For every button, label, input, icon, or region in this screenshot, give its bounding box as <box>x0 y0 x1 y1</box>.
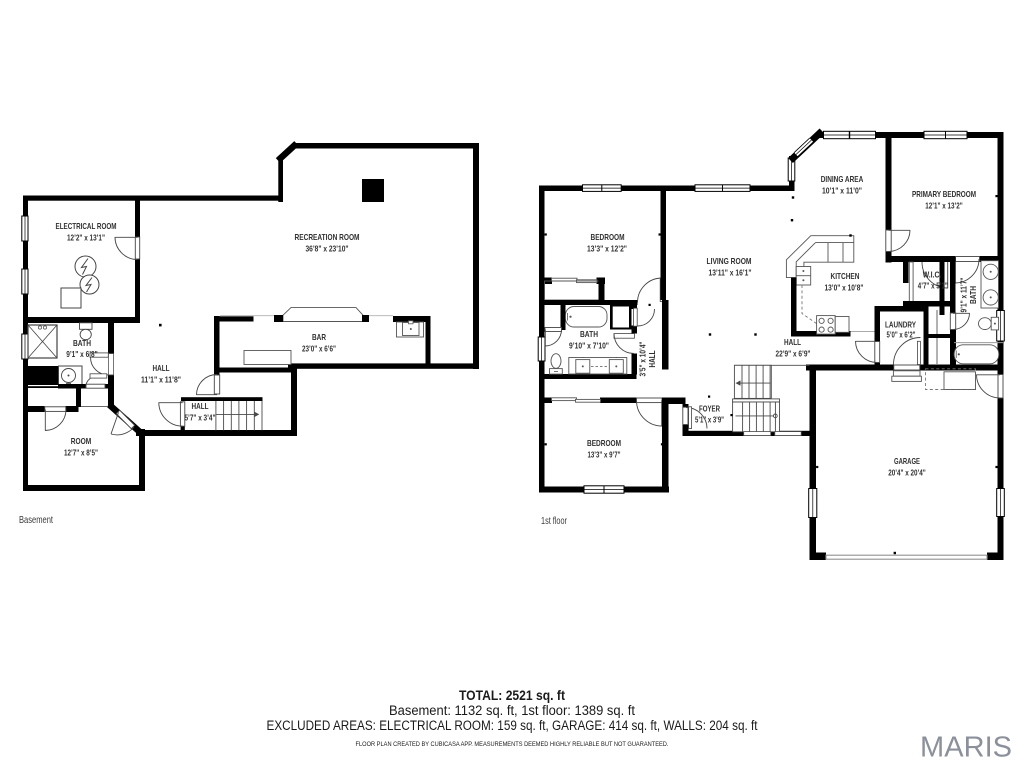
svg-text:HALL: HALL <box>153 363 170 373</box>
svg-text:4’7" x 5’1": 4’7" x 5’1" <box>918 281 948 291</box>
svg-text:ROOM: ROOM <box>71 436 92 446</box>
svg-text:HALL: HALL <box>784 337 801 347</box>
svg-text:36’8" x 23’10": 36’8" x 23’10" <box>306 244 349 254</box>
svg-text:PRIMARY BEDROOM: PRIMARY BEDROOM <box>912 189 976 199</box>
svg-text:11’1" x 11’8": 11’1" x 11’8" <box>141 375 181 385</box>
svg-text:20’4" x 20’4": 20’4" x 20’4" <box>888 468 926 478</box>
svg-text:DINING AREA: DINING AREA <box>821 174 864 184</box>
svg-text:9’1" x 6’8": 9’1" x 6’8" <box>66 349 98 359</box>
svg-text:1st floor: 1st floor <box>541 515 567 527</box>
svg-text:3’5" x 10’4": 3’5" x 10’4" <box>638 341 648 376</box>
svg-text:13’3" x 9’7": 13’3" x 9’7" <box>588 450 621 460</box>
svg-text:ELECTRICAL ROOM: ELECTRICAL ROOM <box>56 221 117 231</box>
svg-text:Basement: Basement <box>19 514 53 526</box>
svg-text:12’2" x 13’1": 12’2" x 13’1" <box>67 233 105 243</box>
svg-text:22’9" x 6’9": 22’9" x 6’9" <box>776 349 811 359</box>
svg-text:MARIS: MARIS <box>920 732 1012 764</box>
svg-text:HALL: HALL <box>647 351 657 368</box>
svg-text:13’0" x 10’8": 13’0" x 10’8" <box>825 283 864 293</box>
svg-text:BAR: BAR <box>312 332 326 342</box>
svg-text:23’0" x 6’6": 23’0" x 6’6" <box>302 344 336 354</box>
svg-text:FLOOR PLAN CREATED BY CUBICASA: FLOOR PLAN CREATED BY CUBICASA APP. MEAS… <box>356 741 669 748</box>
svg-text:LIVING ROOM: LIVING ROOM <box>707 256 752 266</box>
svg-text:12’1" x 13’2": 12’1" x 13’2" <box>925 201 963 211</box>
svg-text:12’7" x 8’5": 12’7" x 8’5" <box>64 448 98 458</box>
svg-text:5’7" x 3’4": 5’7" x 3’4" <box>185 413 216 423</box>
svg-text:BEDROOM: BEDROOM <box>587 438 621 448</box>
svg-text:BATH: BATH <box>968 286 978 304</box>
svg-text:EXCLUDED AREAS: ELECTRICAL ROO: EXCLUDED AREAS: ELECTRICAL ROOM: 159 sq.… <box>267 718 758 733</box>
svg-text:KITCHEN: KITCHEN <box>831 271 860 281</box>
svg-text:Basement: 1132 sq. ft, 1st flo: Basement: 1132 sq. ft, 1st floor: 1389 s… <box>389 703 635 718</box>
svg-text:5’0" x 6’2": 5’0" x 6’2" <box>887 330 916 340</box>
svg-text:LAUNDRY: LAUNDRY <box>885 320 916 330</box>
svg-text:TOTAL: 2521 sq. ft: TOTAL: 2521 sq. ft <box>459 688 565 703</box>
svg-text:HALL: HALL <box>192 401 209 411</box>
svg-text:FOYER: FOYER <box>699 404 720 414</box>
svg-text:10’1" x 11’0": 10’1" x 11’0" <box>822 186 862 196</box>
svg-text:BEDROOM: BEDROOM <box>591 232 625 242</box>
svg-text:9’1" x 11’7": 9’1" x 11’7" <box>959 277 969 312</box>
svg-text:5’1" x 3’9": 5’1" x 3’9" <box>695 415 724 425</box>
svg-text:RECREATION ROOM: RECREATION ROOM <box>295 232 360 242</box>
svg-text:13’3" x 12’2": 13’3" x 12’2" <box>587 244 627 254</box>
svg-text:GARAGE: GARAGE <box>894 456 920 466</box>
svg-text:9’10" x 7’10": 9’10" x 7’10" <box>569 341 609 351</box>
svg-text:BATH: BATH <box>73 338 91 348</box>
svg-text:W.I.C.: W.I.C. <box>923 270 942 280</box>
svg-text:13’11" x 16’1": 13’11" x 16’1" <box>709 268 752 278</box>
svg-text:BATH: BATH <box>580 329 598 339</box>
